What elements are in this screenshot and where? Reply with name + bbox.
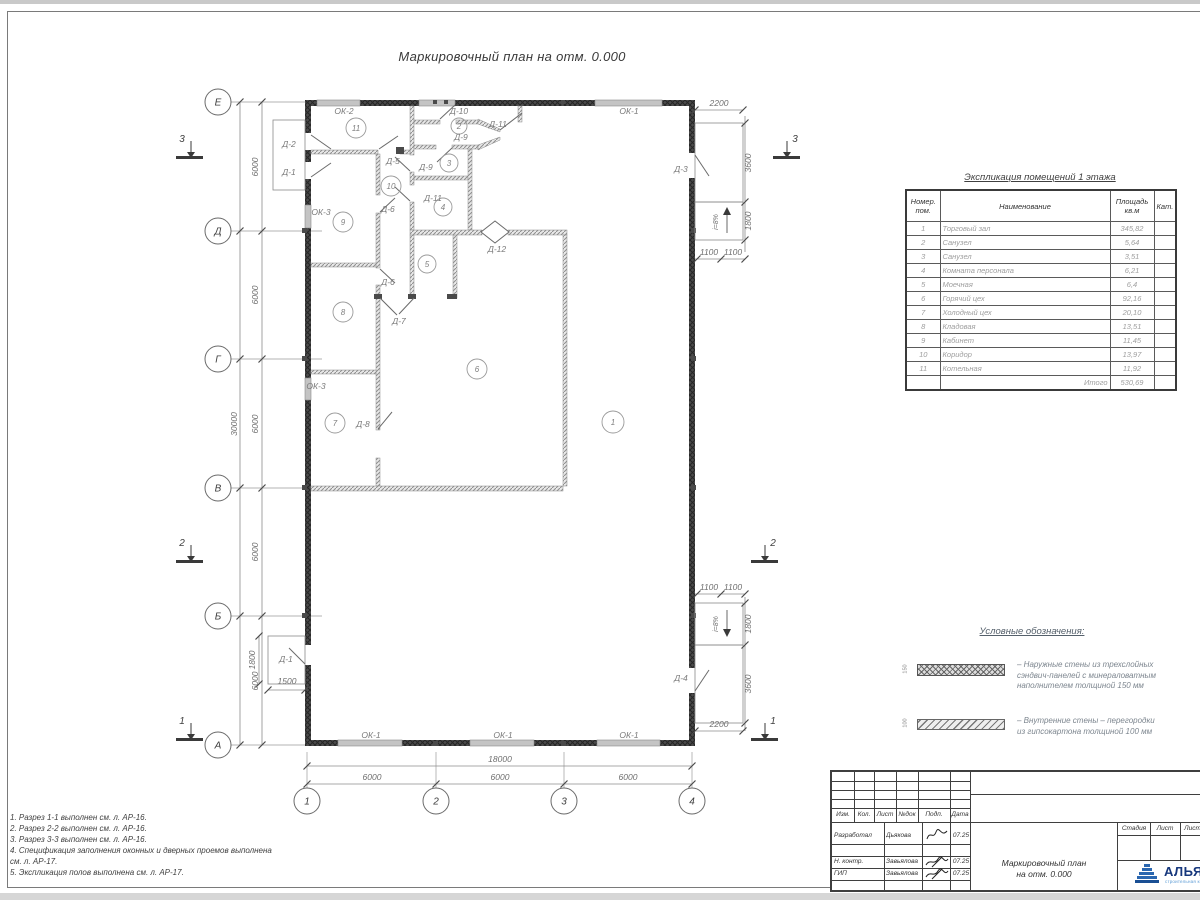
room-num: 1 [906, 222, 940, 236]
col-header-num: Номер.пом. [906, 190, 940, 222]
signature [924, 856, 950, 868]
interior-walls [311, 106, 567, 491]
dim-rb: 1100 [724, 582, 743, 592]
company-logo-text: АЛЬЯНС [1164, 864, 1200, 879]
tb-sheets: Листов [1180, 825, 1200, 832]
room-cat [1154, 306, 1176, 320]
grid-row: Е [215, 98, 222, 109]
room-area: 11,92 [1110, 362, 1154, 376]
room-area: 345,82 [1110, 222, 1154, 236]
room-numbers: 1 2 3 4 5 6 7 8 9 10 11 [325, 118, 624, 433]
dim-rt: 2200 [709, 98, 729, 108]
tb-col-kol: Кол. [854, 811, 874, 818]
section-mark: 2 [769, 538, 776, 549]
table-row: 10Коридор13,97 [906, 348, 1176, 362]
signature [924, 868, 950, 880]
dim-rt: 1100 [724, 247, 743, 257]
room-name: Моечная [940, 278, 1110, 292]
col-header-area: Площадькв.м [1110, 190, 1154, 222]
ramp-slope-label: i=8% [713, 616, 720, 632]
legend-title: Условные обозначения: [952, 626, 1112, 637]
section-mark: 2 [178, 538, 185, 549]
grid-row: Б [215, 612, 222, 623]
tb-col-data: Дата [950, 811, 970, 818]
door-label: Д-8 [355, 419, 370, 429]
room-number: 7 [333, 419, 338, 428]
section-markers: 3 3 2 2 1 1 [176, 134, 800, 741]
room-area: 92,16 [1110, 292, 1154, 306]
table-row: 2Санузел5,64 [906, 236, 1176, 250]
grid-lines [231, 102, 692, 788]
door-label: Д-1 [281, 167, 296, 177]
room-cat [1154, 278, 1176, 292]
tb-col-izm: Изм. [832, 811, 854, 818]
note-line: см. л. АР-17. [10, 856, 272, 867]
room-name: Санузел [940, 236, 1110, 250]
room-number: 9 [341, 218, 346, 227]
room-cat [1154, 348, 1176, 362]
door-label: Д-7 [391, 316, 406, 326]
room-number: 6 [475, 365, 480, 374]
room-cat [1154, 222, 1176, 236]
sheet: { "sheet": { "title": "Маркировочный пла… [0, 0, 1200, 900]
room-area: 20,10 [1110, 306, 1154, 320]
window-label: ОК-1 [361, 730, 380, 740]
room-area: 6,4 [1110, 278, 1154, 292]
total-label: Итого [940, 376, 1110, 391]
tb-col-ndok: №док [896, 811, 918, 818]
tb-col-list: Лист [874, 811, 896, 818]
room-num: 7 [906, 306, 940, 320]
room-cat [1154, 292, 1176, 306]
table-row: 9Кабинет11,45 [906, 334, 1176, 348]
room-area: 13,51 [1110, 320, 1154, 334]
dim-rt: 3600 [743, 153, 753, 172]
table-row: 7Холодный цех20,10 [906, 306, 1176, 320]
dim-total-h: 18000 [488, 754, 512, 764]
room-cat [1154, 320, 1176, 334]
door-label: Д-10 [449, 106, 469, 116]
dim-rb: 1100 [700, 582, 719, 592]
tb-col-podp: Подп. [918, 811, 950, 818]
dim-rb: 1800 [743, 614, 753, 633]
legend-line: – Внутренние стены – перегородки [1017, 716, 1200, 727]
explication-table: Номер.пом. Наименование Площадькв.м Кат.… [905, 189, 1177, 391]
window-label: ОК-3 [311, 207, 330, 217]
table-row: 6Горячий цех92,16 [906, 292, 1176, 306]
legend-interior-wall-symbol [917, 719, 1005, 730]
dim-v: 6000 [250, 285, 260, 304]
col-header-name: Наименование [940, 190, 1110, 222]
dim-rb: 3600 [743, 674, 753, 693]
room-num: 5 [906, 278, 940, 292]
dim-h: 6000 [491, 772, 510, 782]
section-mark: 3 [792, 134, 798, 145]
ramp-slope-label: i=8% [713, 214, 720, 230]
room-num: 11 [906, 362, 940, 376]
signature [924, 827, 950, 842]
door-label: Д-5 [385, 156, 400, 166]
grid-row: Д [213, 227, 221, 238]
tb-stage: Стадия [1118, 825, 1150, 832]
tb-date: 07.25 [952, 858, 970, 865]
room-number: 8 [341, 308, 346, 317]
dim-rt: 1100 [700, 247, 719, 257]
room-name: Холодный цех [940, 306, 1110, 320]
total-value: 530,69 [1110, 376, 1154, 391]
porches-ramps [268, 120, 743, 723]
room-number: 1 [611, 418, 615, 427]
dim-h: 6000 [363, 772, 382, 782]
room-number: 10 [387, 182, 396, 191]
room-name: Горячий цех [940, 292, 1110, 306]
window-label: ОК-2 [334, 106, 353, 116]
room-area: 3,51 [1110, 250, 1154, 264]
window-label: ОК-1 [619, 730, 638, 740]
dim-v: 6000 [250, 157, 260, 176]
room-area: 6,21 [1110, 264, 1154, 278]
tb-date: 07.25 [952, 870, 970, 877]
note-line: 3. Разрез 3-3 выполнен см. л. АР-16. [10, 834, 272, 845]
table-header-row: Номер.пом. Наименование Площадькв.м Кат. [906, 190, 1176, 222]
tb-doc-title-line2: на отм. 0.000 [972, 869, 1116, 880]
window-label: ОК-1 [619, 106, 638, 116]
window-label: ОК-1 [493, 730, 512, 740]
door-label: Д-11 [488, 119, 507, 129]
table-row: 8Кладовая13,51 [906, 320, 1176, 334]
table-row: 1Торговый зал345,82 [906, 222, 1176, 236]
room-name: Кабинет [940, 334, 1110, 348]
room-name: Комната персонала [940, 264, 1110, 278]
section-mark: 1 [179, 716, 185, 727]
tb-role: Н. контр. [834, 858, 884, 865]
notes: 1. Разрез 1-1 выполнен см. л. АР-16. 2. … [10, 812, 272, 878]
note-line: 5. Экспликация полов выполнена см. л. АР… [10, 867, 272, 878]
dim-total-v: 30000 [229, 412, 239, 436]
door-label: Д-3 [673, 164, 688, 174]
tb-doc-title-line1: Маркировочный план [972, 858, 1116, 869]
note-line: 2. Разрез 2-2 выполнен см. л. АР-16. [10, 823, 272, 834]
room-number: 2 [456, 122, 462, 131]
room-num: 6 [906, 292, 940, 306]
room-num: 4 [906, 264, 940, 278]
table-row: 5Моечная6,4 [906, 278, 1176, 292]
legend-line: наполнителем толщиной 150 мм [1017, 681, 1200, 692]
room-area: 13,97 [1110, 348, 1154, 362]
dim-v: 6000 [250, 542, 260, 561]
dim-h: 6000 [619, 772, 638, 782]
dim-rt: 1800 [743, 211, 753, 230]
grid-bubbles: Е Д Г В Б А 1 2 3 4 [205, 89, 705, 814]
window-label: ОК-3 [306, 381, 325, 391]
legend-interior-wall-text: – Внутренние стены – перегородки из гипс… [1017, 716, 1200, 737]
door-label: Д-6 [380, 277, 395, 287]
grid-col: 4 [689, 797, 695, 808]
room-cat [1154, 334, 1176, 348]
note-line: 4. Спецификация заполнения оконных и две… [10, 845, 272, 856]
room-area: 5,64 [1110, 236, 1154, 250]
table-total-row: Итого530,69 [906, 376, 1176, 391]
room-name: Торговый зал [940, 222, 1110, 236]
legend-dim-100: 100 [903, 718, 909, 727]
opening-labels: Д-2 Д-1 Д-1 Д-3 Д-4 Д-5 Д-6 Д-6 Д-7 Д-8 … [278, 106, 688, 740]
grid-col: 1 [304, 797, 310, 808]
door-label: Д-1 [278, 654, 293, 664]
door-swings [289, 105, 709, 691]
room-number: 3 [447, 159, 452, 168]
legend-line: из гипсокартона толщиной 100 мм [1017, 727, 1200, 738]
tb-date: 07.25 [952, 832, 970, 839]
dim-porch: 1800 [247, 650, 257, 669]
dim-v: 6000 [250, 671, 260, 690]
section-mark: 3 [179, 134, 185, 145]
room-name: Санузел [940, 250, 1110, 264]
tb-role: Разработал [834, 832, 884, 839]
room-num: 8 [906, 320, 940, 334]
title-block: Изм. Кол. Лист №док Подп. Дата Разработа… [830, 770, 1200, 892]
legend-line: сэндвич-панелей с минераловатным [1017, 671, 1200, 682]
door-label: Д-11 [423, 193, 442, 203]
room-cat [1154, 250, 1176, 264]
legend-dim-150: 150 [903, 664, 909, 673]
empty-cell [1154, 376, 1176, 391]
dimension-lines [237, 99, 749, 788]
room-num: 3 [906, 250, 940, 264]
room-number: 5 [425, 260, 430, 269]
company-logo-icon [1133, 862, 1161, 888]
table-row: 3Санузел3,51 [906, 250, 1176, 264]
tb-name: Завьялова [886, 870, 922, 877]
room-num: 9 [906, 334, 940, 348]
table-row: 11Котельная11,92 [906, 362, 1176, 376]
legend-exterior-wall-text: – Наружные стены из трехслойных сэндвич-… [1017, 660, 1200, 692]
section-mark: 1 [770, 716, 776, 727]
room-number: 4 [441, 203, 446, 212]
room-cat [1154, 264, 1176, 278]
room-num: 2 [906, 236, 940, 250]
door-label: Д-4 [673, 673, 688, 683]
room-number: 11 [352, 124, 360, 133]
tb-doc-title: Маркировочный план на отм. 0.000 [972, 858, 1116, 880]
room-cat [1154, 362, 1176, 376]
grid-col: 3 [561, 797, 567, 808]
note-line: 1. Разрез 1-1 выполнен см. л. АР-16. [10, 812, 272, 823]
tb-sheet: Лист [1150, 825, 1180, 832]
grid-col: 2 [432, 797, 439, 808]
table-row: 4Комната персонала6,21 [906, 264, 1176, 278]
grid-row: А [214, 741, 222, 752]
dim-porch: 1500 [278, 676, 297, 686]
room-cat [1154, 236, 1176, 250]
room-name: Кладовая [940, 320, 1110, 334]
tb-name: Завьялова [886, 858, 922, 865]
room-area: 11,45 [1110, 334, 1154, 348]
door-label: Д-2 [281, 139, 296, 149]
door-label: Д-6 [380, 204, 395, 214]
room-name: Котельная [940, 362, 1110, 376]
door-label: Д-12 [487, 244, 507, 254]
double-door-d12 [481, 221, 509, 243]
dim-rb: 2200 [709, 719, 729, 729]
grid-row: В [215, 484, 222, 495]
door-label: Д-9 [453, 132, 468, 142]
dim-v: 6000 [250, 414, 260, 433]
col-header-cat: Кат. [1154, 190, 1176, 222]
legend-line: – Наружные стены из трехслойных [1017, 660, 1200, 671]
legend-exterior-wall-symbol [917, 664, 1005, 676]
room-name: Коридор [940, 348, 1110, 362]
company-logo-subtext: строительная компания [1165, 879, 1200, 884]
explication-title: Экспликация помещений 1 этажа [905, 172, 1175, 183]
tb-name: Дьякова [886, 832, 922, 839]
floor-plan: 30000 6000 6000 6000 6000 6000 18000 600… [0, 0, 1200, 900]
empty-cell [906, 376, 940, 391]
room-num: 10 [906, 348, 940, 362]
door-label: Д-9 [418, 162, 433, 172]
tb-role: ГИП [834, 870, 884, 877]
